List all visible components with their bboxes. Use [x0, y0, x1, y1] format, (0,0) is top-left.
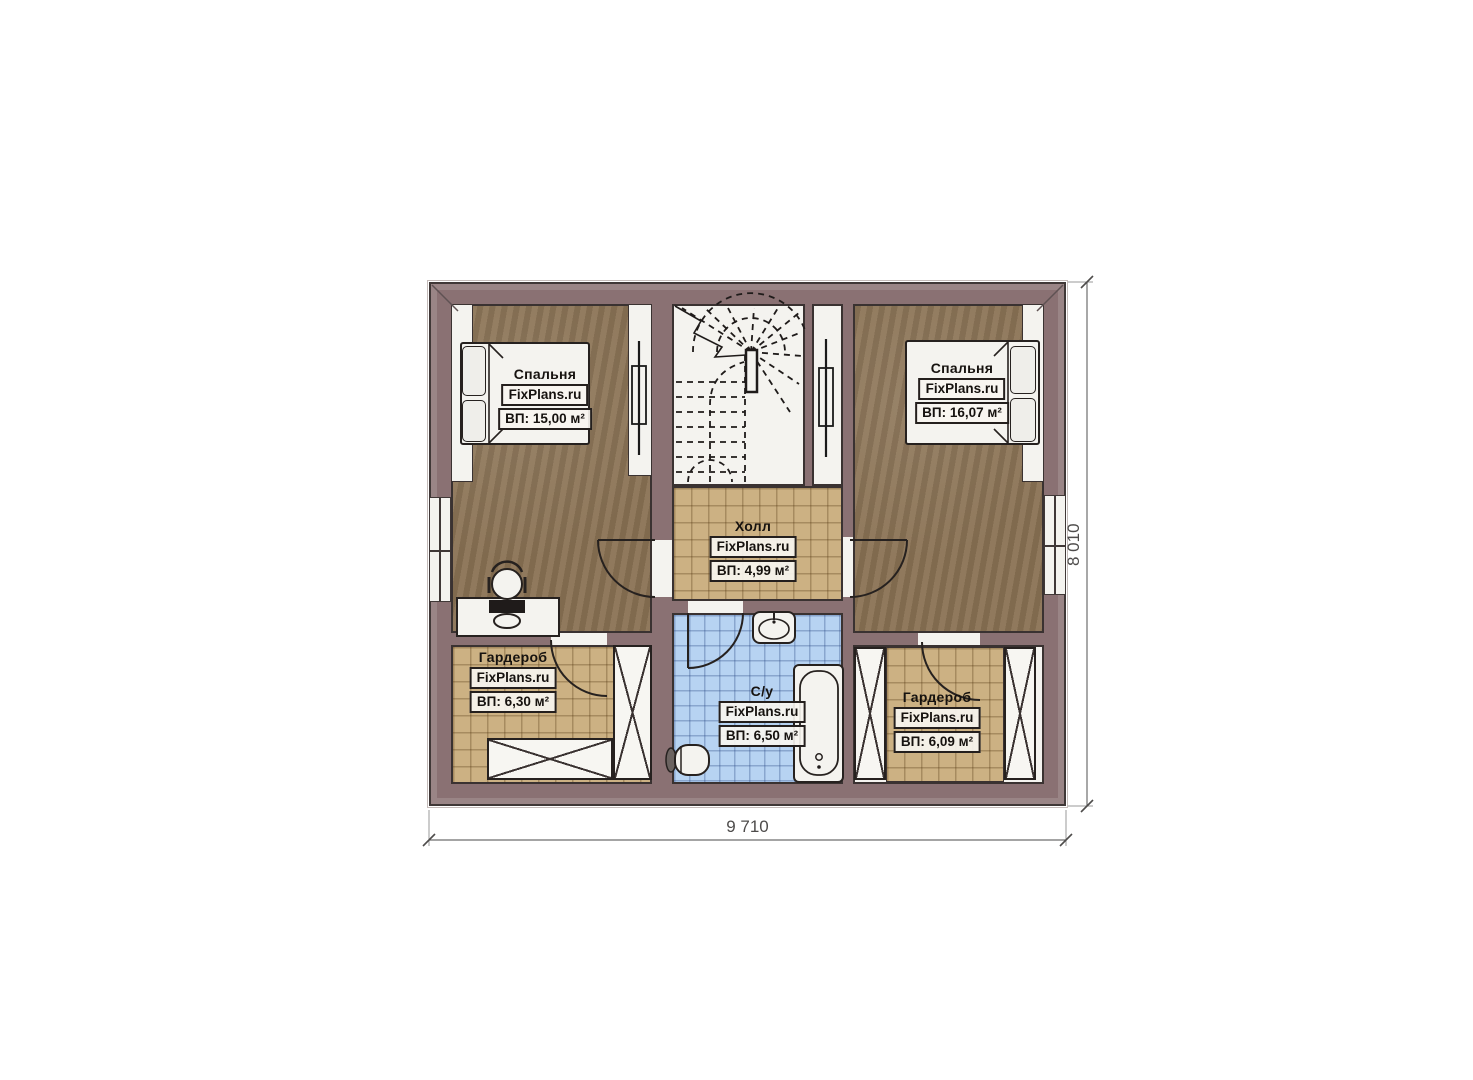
room-label-bedroom-right: Спальня FixPlans.ru ВП: 16,07 м²	[915, 360, 1009, 424]
stair-niche-floor	[812, 304, 843, 486]
area-box: ВП: 15,00 м²	[498, 408, 592, 430]
area-box: ВП: 6,09 м²	[894, 731, 980, 753]
brand-box: FixPlans.ru	[710, 536, 797, 558]
window-mullion	[1045, 545, 1065, 547]
room-name: С/у	[751, 683, 774, 699]
room-label-wardrobe-left: Гардероб FixPlans.ru ВП: 6,30 м²	[470, 649, 557, 713]
brand-box: FixPlans.ru	[894, 707, 981, 729]
pillow-icon	[1010, 398, 1036, 442]
room-label-wardrobe-right: Гардероб FixPlans.ru ВП: 6,09 м²	[894, 689, 981, 753]
window-mullion	[430, 550, 450, 552]
door-opening-bathroom	[688, 601, 743, 613]
knee-wall-strip-stair-left	[628, 304, 652, 476]
brand-box: FixPlans.ru	[502, 384, 589, 406]
pillow-icon	[462, 400, 486, 442]
door-opening-bedroom-right	[843, 537, 853, 597]
brand-box: FixPlans.ru	[919, 378, 1006, 400]
area-box: ВП: 16,07 м²	[915, 402, 1009, 424]
desk-icon	[456, 597, 560, 637]
brand-box: FixPlans.ru	[719, 701, 806, 723]
room-name: Спальня	[514, 366, 577, 382]
dimension-width-label: 9 710	[700, 817, 795, 837]
area-box: ВП: 6,30 м²	[470, 691, 556, 713]
wardrobe-cabinet-icon	[487, 738, 613, 780]
window-left	[429, 497, 451, 602]
room-name: Гардероб	[903, 689, 972, 705]
room-label-bedroom-left: Спальня FixPlans.ru ВП: 15,00 м²	[498, 366, 592, 430]
room-name: Спальня	[931, 360, 994, 376]
room-name: Холл	[735, 518, 771, 534]
room-label-bathroom: С/у FixPlans.ru ВП: 6,50 м²	[719, 683, 806, 747]
room-name: Гардероб	[479, 649, 548, 665]
floor-plan-canvas: Спальня FixPlans.ru ВП: 15,00 м² Спальня…	[0, 0, 1473, 1080]
brand-box: FixPlans.ru	[470, 667, 557, 689]
pillow-icon	[462, 346, 486, 396]
dimension-height-label: 8 010	[1064, 505, 1084, 585]
wardrobe-cabinet-icon	[613, 645, 652, 780]
window-right	[1044, 495, 1066, 595]
area-box: ВП: 4,99 м²	[710, 560, 796, 582]
wardrobe-cabinet-icon	[854, 647, 886, 780]
area-box: ВП: 6,50 м²	[719, 725, 805, 747]
pillow-icon	[1010, 346, 1036, 394]
wardrobe-cabinet-icon	[1004, 647, 1036, 780]
stairwell-floor	[672, 304, 805, 486]
door-opening-wardrobe-right	[918, 633, 980, 645]
door-opening-bedroom-left	[652, 540, 672, 597]
room-label-hall: Холл FixPlans.ru ВП: 4,99 м²	[710, 518, 797, 582]
